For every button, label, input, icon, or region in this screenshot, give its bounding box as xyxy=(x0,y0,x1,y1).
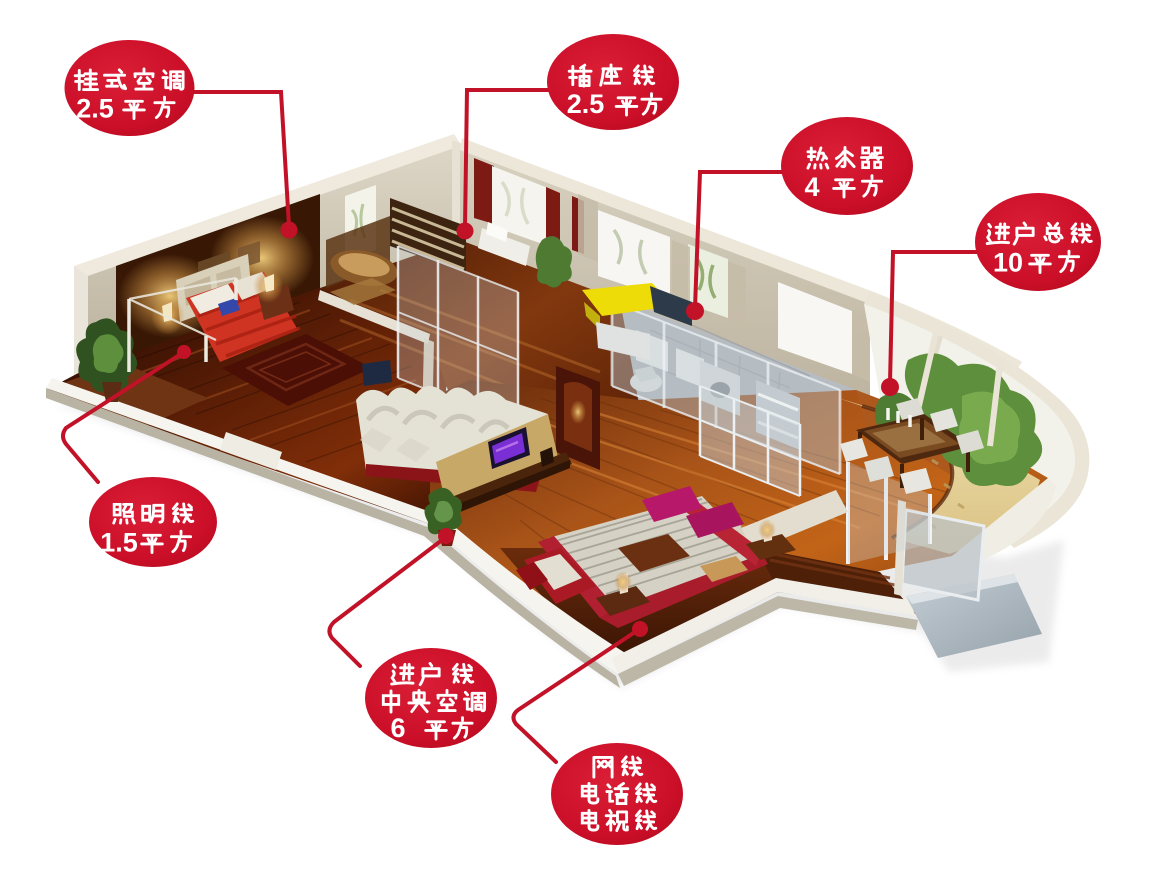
svg-text:4: 4 xyxy=(804,172,819,202)
svg-text:2.5: 2.5 xyxy=(567,89,605,119)
svg-text:10: 10 xyxy=(993,248,1023,278)
svg-text:1.5: 1.5 xyxy=(100,528,138,558)
svg-text:6: 6 xyxy=(390,713,405,743)
svg-text:2.5: 2.5 xyxy=(76,94,114,124)
